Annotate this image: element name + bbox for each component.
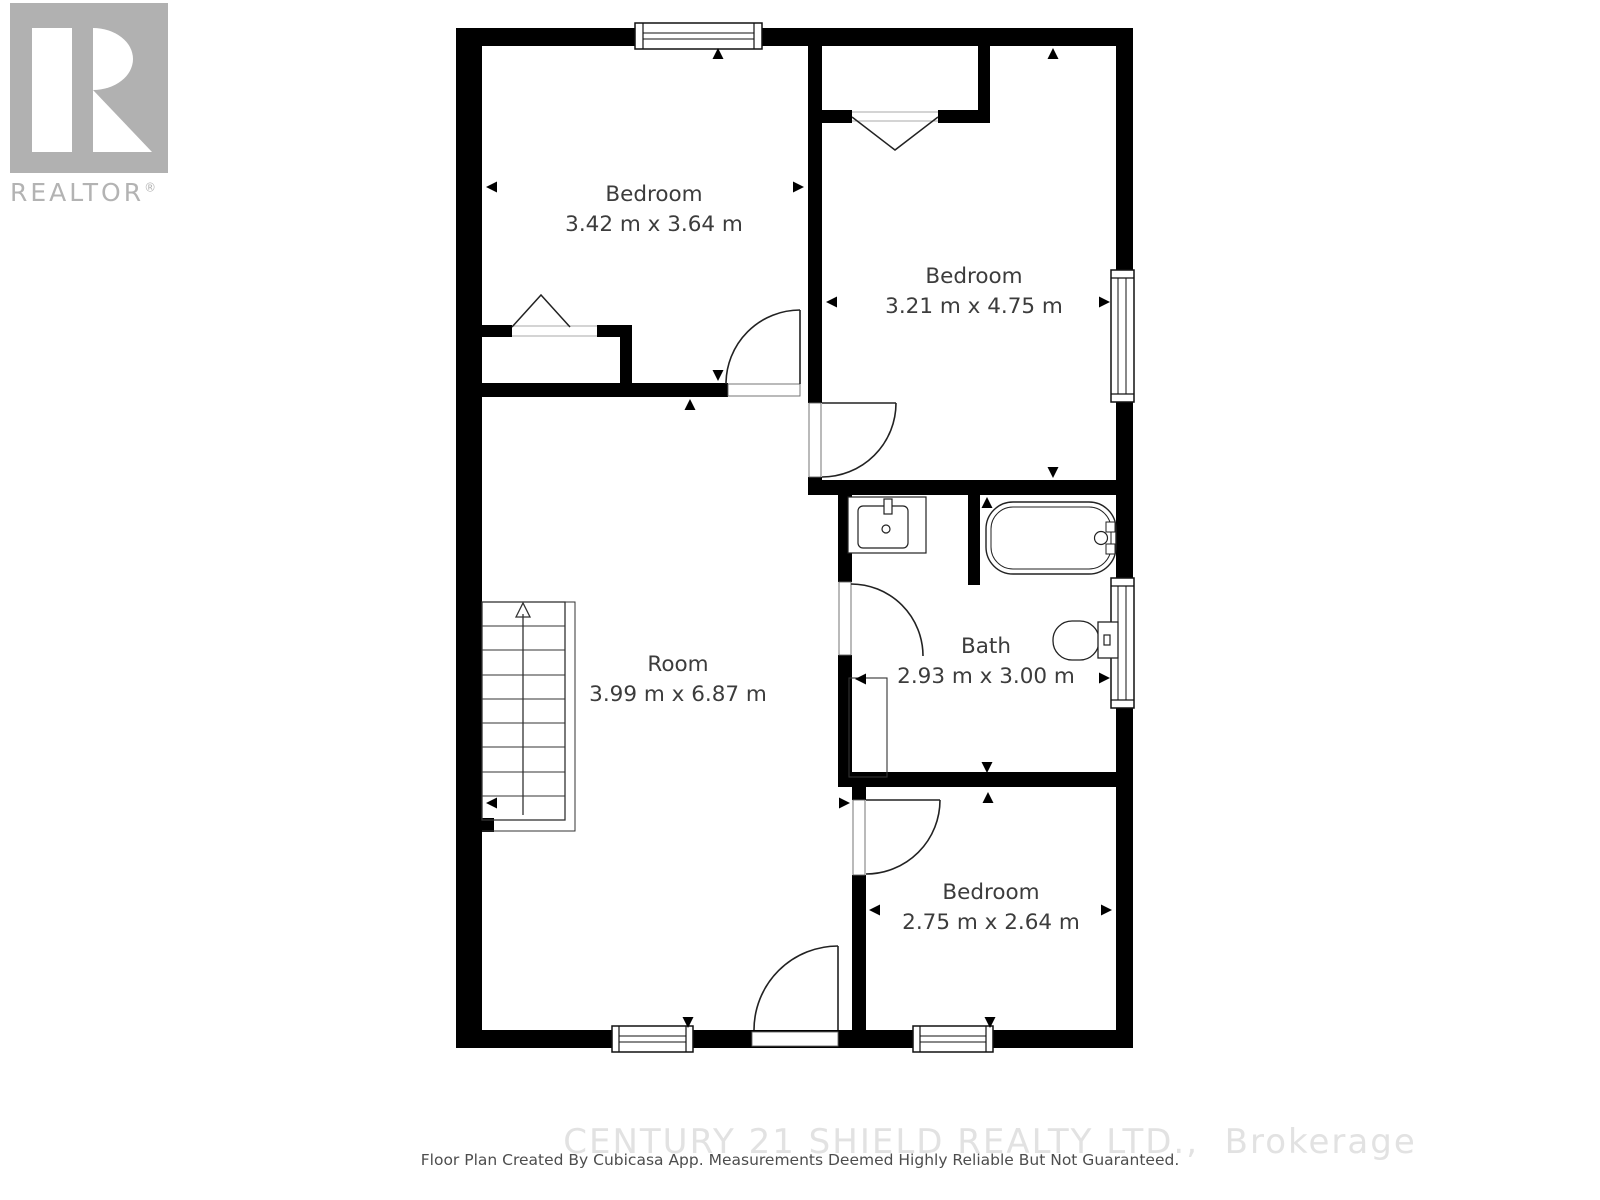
measure-arrow-right-icon — [1101, 905, 1112, 916]
wall-divider-bedrooms — [808, 28, 822, 403]
wall-bath-bottom — [838, 772, 1132, 787]
measure-arrow-left-icon — [855, 674, 866, 685]
room-name: Room — [589, 650, 767, 680]
measure-arrow-up-icon — [982, 497, 993, 508]
door-bedroom2 — [809, 403, 896, 477]
wall-bedroom1-closet-right — [620, 337, 632, 383]
measure-arrow-down-icon — [1048, 467, 1059, 478]
sink-drain — [882, 525, 890, 533]
disclaimer-text: Floor Plan Created By Cubicasa App. Meas… — [421, 1151, 1180, 1169]
room-name: Bedroom — [902, 878, 1080, 908]
wall-bedroom1-closet-top-left — [482, 325, 512, 337]
wall-bedroom3-left-stub — [852, 787, 866, 800]
measure-arrow-up-icon — [1048, 48, 1059, 59]
arrows-room — [486, 399, 850, 1028]
bathtub-inner — [991, 507, 1111, 569]
measure-arrow-left-icon — [486, 182, 497, 193]
wall-outer-right — [1116, 28, 1133, 1048]
window-bedroom1-top — [635, 23, 762, 49]
wall-bedroom1-bottom — [482, 383, 728, 397]
measure-arrow-right-icon — [1099, 297, 1110, 308]
measure-arrow-down-icon — [982, 762, 993, 773]
room-label-bedroom-3: Bedroom 2.75 m x 2.64 m — [902, 878, 1080, 938]
closet-doors-bedroom2 — [852, 112, 938, 150]
staircase — [482, 602, 575, 831]
room-dimensions: 3.99 m x 6.87 m — [589, 680, 767, 710]
floor-plan-drawing — [0, 0, 1600, 1200]
sink — [848, 497, 926, 553]
measure-arrow-right-icon — [839, 798, 850, 809]
room-name: Bedroom — [565, 180, 743, 210]
room-name: Bath — [897, 632, 1075, 662]
door-bedroom1 — [726, 310, 800, 396]
room-dimensions: 3.21 m x 4.75 m — [885, 292, 1063, 322]
bath-cabinet — [849, 678, 887, 777]
bathtub — [986, 502, 1116, 574]
doors — [512, 112, 940, 1046]
measure-arrow-right-icon — [1099, 673, 1110, 684]
window-bedroom2-right — [1111, 270, 1134, 402]
measure-arrow-down-icon — [713, 370, 724, 381]
measure-arrow-up-icon — [983, 792, 994, 803]
room-dimensions: 2.75 m x 2.64 m — [902, 908, 1080, 938]
measure-arrow-right-icon — [793, 182, 804, 193]
wall-outer-left — [456, 28, 482, 1048]
room-label-bedroom-1: Bedroom 3.42 m x 3.64 m — [565, 180, 743, 240]
bathtub-tap-bottom — [1106, 544, 1115, 554]
door-bedroom3 — [853, 800, 940, 875]
room-name: Bedroom — [885, 262, 1063, 292]
wall-bedroom2-closet-bottom-left — [820, 110, 852, 123]
window-room-bottom — [612, 1026, 693, 1052]
toilet-flush-button — [1104, 635, 1110, 645]
room-dimensions: 3.42 m x 3.64 m — [565, 210, 743, 240]
wall-bedroom3-left — [852, 875, 866, 1033]
wall-bath-top — [808, 480, 1132, 495]
wall-tub-partition — [968, 495, 980, 585]
room-label-bath: Bath 2.93 m x 3.00 m — [897, 632, 1075, 692]
wall-bath-left-lower — [838, 655, 852, 775]
measure-arrow-left-icon — [486, 798, 497, 809]
sink-faucet — [884, 499, 892, 514]
closet-doors-bedroom1 — [512, 295, 597, 336]
stair-rail — [482, 602, 575, 831]
measure-arrow-left-icon — [869, 905, 880, 916]
wall-bedroom1-closet-top-right — [597, 325, 632, 337]
window-bedroom3-bottom — [913, 1026, 993, 1052]
wall-outer-top — [456, 28, 1132, 46]
measure-arrow-left-icon — [826, 297, 837, 308]
room-dimensions: 2.93 m x 3.00 m — [897, 662, 1075, 692]
bathtub-tap-top — [1106, 522, 1115, 532]
floor-plan-page: REALTOR® — [0, 0, 1600, 1200]
room-label-room: Room 3.99 m x 6.87 m — [589, 650, 767, 710]
measure-arrow-up-icon — [685, 399, 696, 410]
wall-bedroom2-closet-right — [978, 28, 990, 123]
bathtub-faucet — [1095, 532, 1108, 545]
room-label-bedroom-2: Bedroom 3.21 m x 4.75 m — [885, 262, 1063, 322]
wall-bedroom2-closet-bottom-right — [938, 110, 978, 123]
